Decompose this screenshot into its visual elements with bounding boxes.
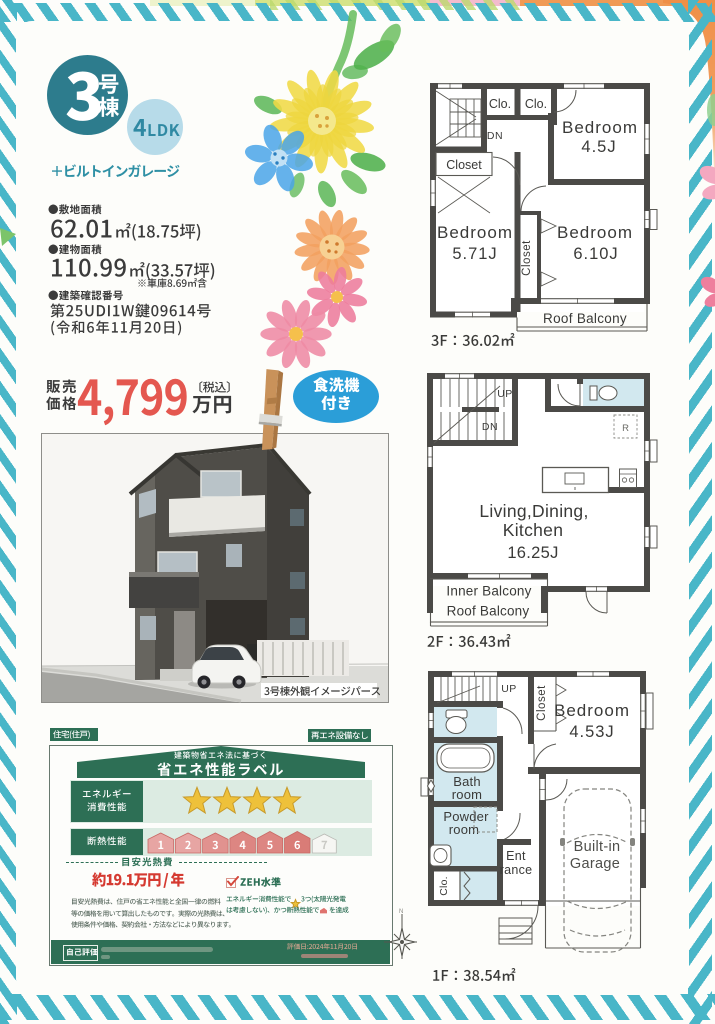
svg-text:UP: UP xyxy=(497,388,513,400)
svg-text:Closet: Closet xyxy=(521,240,533,276)
svg-text:Built-in: Built-in xyxy=(574,839,621,855)
svg-text:Clo.: Clo. xyxy=(438,876,450,895)
svg-text:Ent: Ent xyxy=(506,849,526,863)
svg-text:Closet: Closet xyxy=(446,158,482,172)
svg-text:6.10J: 6.10J xyxy=(573,245,618,263)
svg-text:rance: rance xyxy=(500,863,533,877)
svg-text:16.25J: 16.25J xyxy=(507,544,558,562)
svg-text:Clo.: Clo. xyxy=(489,97,511,111)
svg-text:R: R xyxy=(622,423,629,434)
svg-text:5.71J: 5.71J xyxy=(452,245,497,263)
svg-text:Closet: Closet xyxy=(536,685,548,721)
svg-text:room: room xyxy=(449,822,479,837)
svg-text:Inner Balcony: Inner Balcony xyxy=(446,584,531,599)
svg-text:room: room xyxy=(452,787,482,802)
svg-text:Bedroom: Bedroom xyxy=(437,223,513,242)
svg-text:DN: DN xyxy=(487,130,503,142)
svg-text:Living,Dining,: Living,Dining, xyxy=(479,501,588,521)
svg-text:4.53J: 4.53J xyxy=(569,723,614,741)
svg-text:4.5J: 4.5J xyxy=(581,138,616,156)
svg-text:N: N xyxy=(399,909,403,915)
svg-text:DN: DN xyxy=(482,421,498,433)
svg-text:Kitchen: Kitchen xyxy=(503,520,563,540)
svg-text:Clo.: Clo. xyxy=(525,97,547,111)
svg-text:Roof Balcony: Roof Balcony xyxy=(543,311,627,326)
svg-text:Bedroom: Bedroom xyxy=(554,701,630,720)
svg-text:Bedroom: Bedroom xyxy=(562,118,638,137)
svg-text:Roof Balcony: Roof Balcony xyxy=(447,604,530,619)
svg-text:Bedroom: Bedroom xyxy=(557,223,633,242)
svg-text:UP: UP xyxy=(501,683,517,695)
svg-text:Garage: Garage xyxy=(570,856,620,872)
